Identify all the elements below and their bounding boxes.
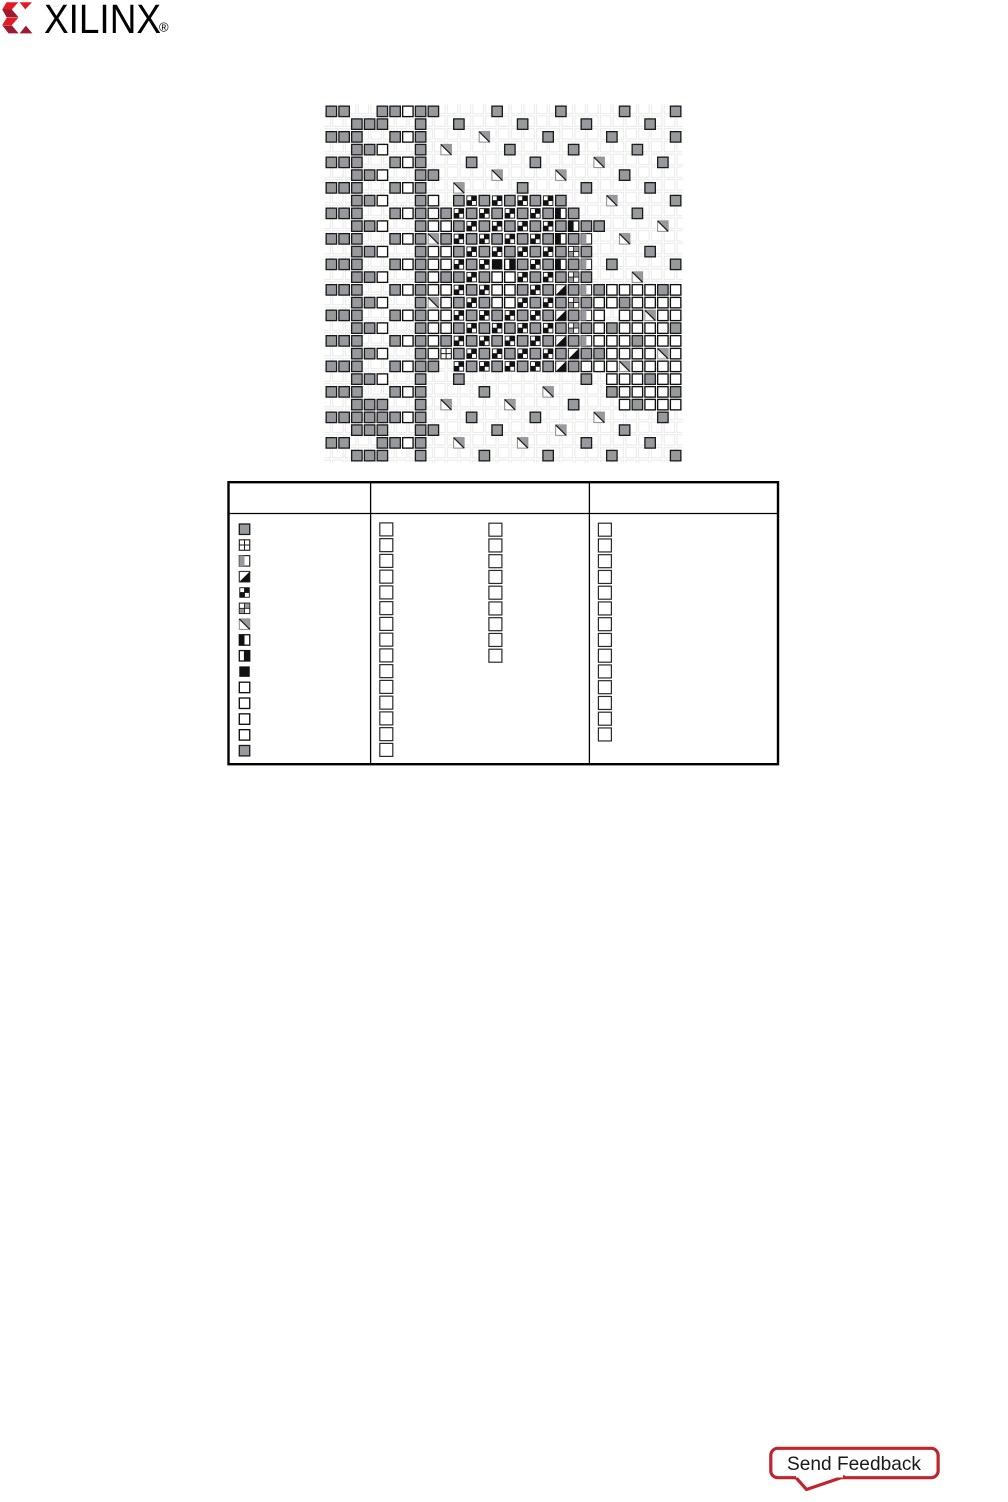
svg-text:Send Feedback: Send Feedback (787, 1453, 921, 1475)
svg-text:XILINX: XILINX (44, 0, 161, 42)
svg-text:®: ® (159, 20, 169, 35)
